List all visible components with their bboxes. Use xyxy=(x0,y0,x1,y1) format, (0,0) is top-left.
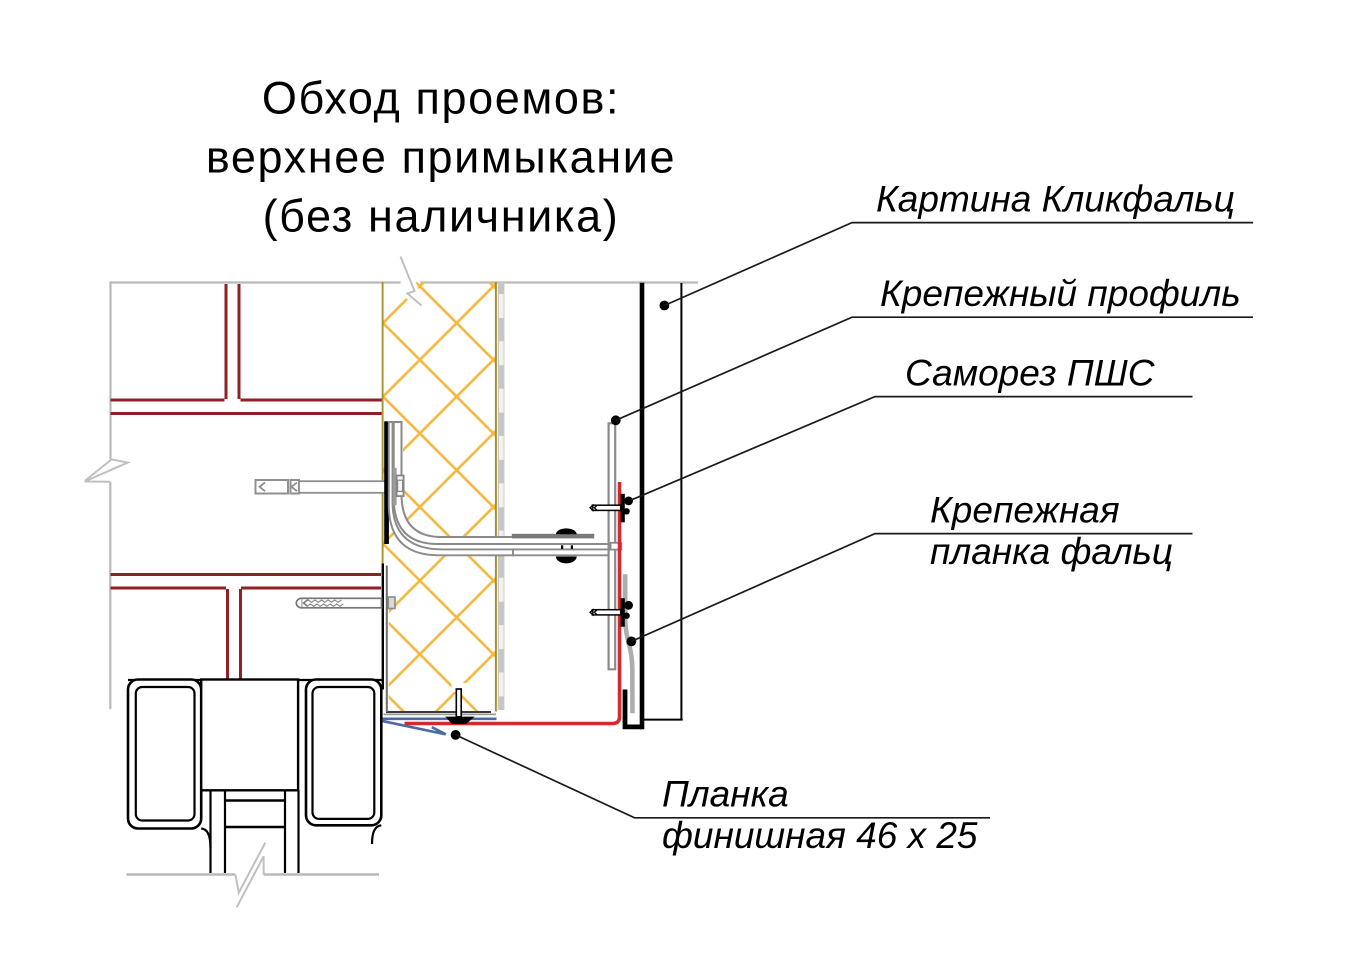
svg-text:Крепежный профиль: Крепежный профиль xyxy=(880,273,1241,314)
svg-text:планка фальц: планка фальц xyxy=(930,531,1173,572)
svg-text:верхнее примыкание: верхнее примыкание xyxy=(206,132,676,183)
svg-text:финишная 46 x 25: финишная 46 x 25 xyxy=(662,815,978,856)
svg-text:Картина Кликфальц: Картина Кликфальц xyxy=(876,178,1235,219)
svg-text:Крепежная: Крепежная xyxy=(930,489,1120,530)
svg-text:Саморез ПШС: Саморез ПШС xyxy=(905,352,1155,393)
svg-text:Планка: Планка xyxy=(662,774,789,815)
svg-text:(без наличника): (без наличника) xyxy=(263,191,620,242)
svg-text:Обход проемов:: Обход проемов: xyxy=(262,73,620,124)
